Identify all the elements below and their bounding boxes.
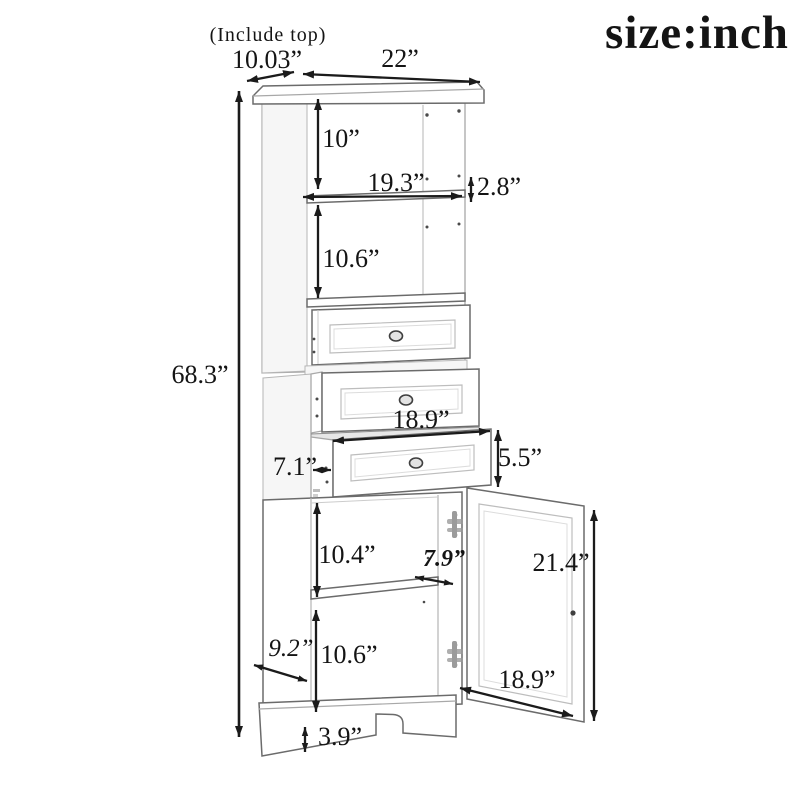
label-base-depth: 9.2” [268, 635, 313, 662]
label-top-depth: 10.03” [232, 45, 302, 74]
lower-cabinet-body [263, 492, 462, 712]
label-drawer-width: 18.9” [392, 405, 449, 434]
shelf-pin-hole [457, 109, 460, 112]
label-top-width: 22” [381, 44, 419, 73]
label-lower-open-height: 10.4” [318, 540, 375, 569]
label-inner-width: 19.3” [367, 168, 424, 197]
dimension-diagram: (Include top) size:inch 10.03” 22” 68.3”… [0, 0, 800, 800]
upper-left-side-panel [262, 102, 307, 373]
cabinet-dimension-drawing: (Include top) size:inch 10.03” 22” 68.3”… [0, 0, 800, 800]
label-shelf-depth: 7.9” [423, 546, 465, 572]
label-door-width: 18.9” [498, 665, 555, 694]
label-total-height: 68.3” [171, 360, 228, 389]
label-open-mid-height: 10.6” [322, 244, 379, 273]
shelf-pin-hole [458, 223, 461, 226]
drawer-2-knob [400, 395, 413, 405]
shelf-pin-hole [426, 178, 429, 181]
label-shelf-gap: 2.8” [477, 172, 521, 201]
drawer-3-open [311, 427, 491, 501]
label-open-top-height: 10” [322, 124, 360, 153]
label-door-height: 21.4” [532, 548, 589, 577]
include-top-note: (Include top) [210, 24, 327, 46]
drawer-1 [312, 305, 470, 365]
label-drawer-height: 5.5” [498, 443, 542, 472]
drawer-1-knob [390, 331, 403, 341]
drawer-3-knob [410, 458, 423, 468]
label-drawer-depth: 7.1” [273, 452, 317, 481]
shelf-pin-hole [458, 175, 461, 178]
label-base-height: 3.9” [318, 722, 362, 751]
label-bottom-open-height: 10.6” [320, 640, 377, 669]
shelf-pin-hole [426, 226, 429, 229]
door-knob [570, 610, 575, 615]
shelf-pin-hole [425, 113, 428, 116]
arrow-top-width [303, 74, 480, 82]
size-unit-label: size:inch [605, 7, 789, 59]
